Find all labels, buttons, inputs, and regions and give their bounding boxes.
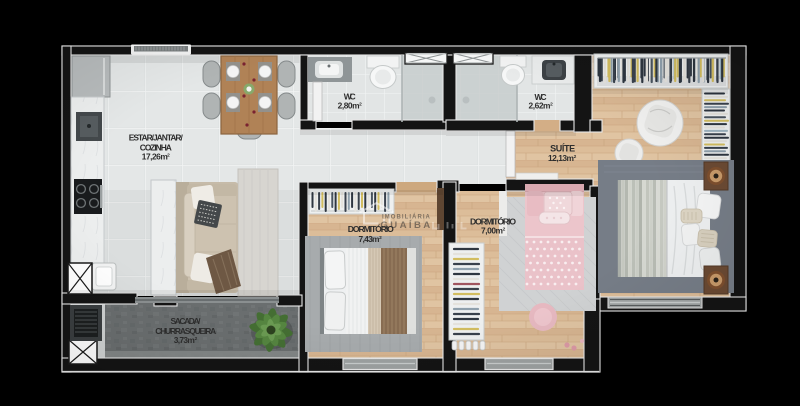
svg-text:GUAÍBA: GUAÍBA — [380, 219, 432, 231]
